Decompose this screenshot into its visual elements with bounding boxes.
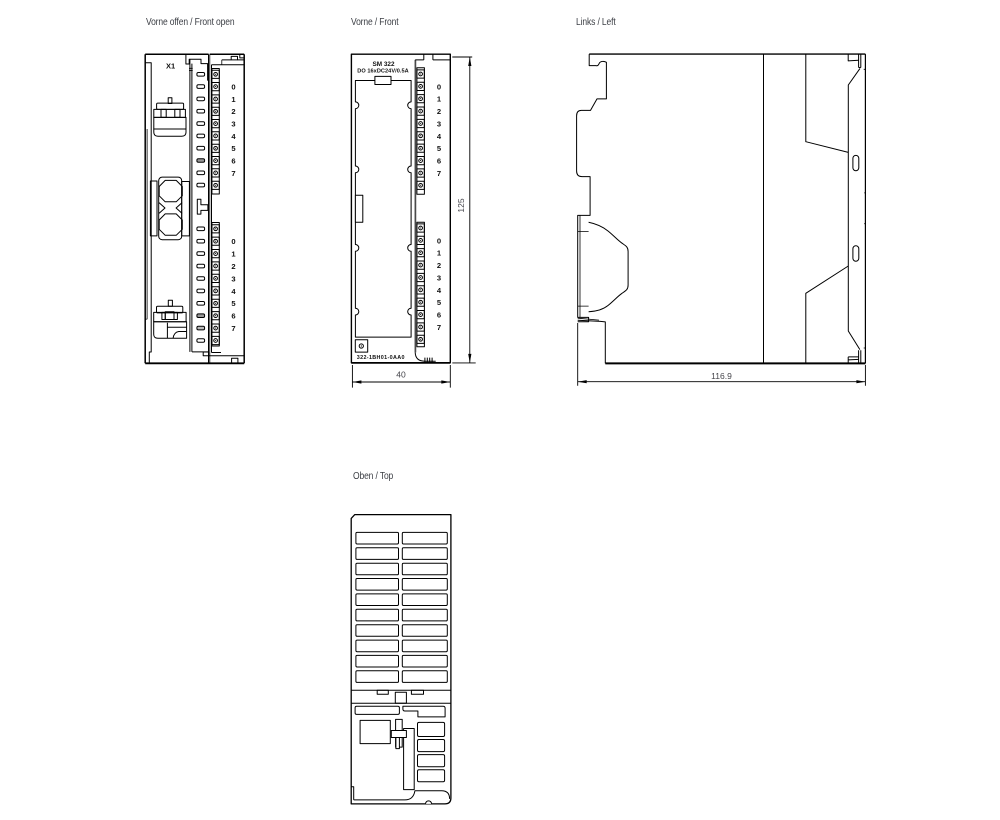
svg-text:X1: X1 xyxy=(166,62,175,71)
svg-text:125: 125 xyxy=(456,198,466,212)
svg-text:40: 40 xyxy=(396,370,406,380)
svg-text:116.9: 116.9 xyxy=(711,371,732,381)
